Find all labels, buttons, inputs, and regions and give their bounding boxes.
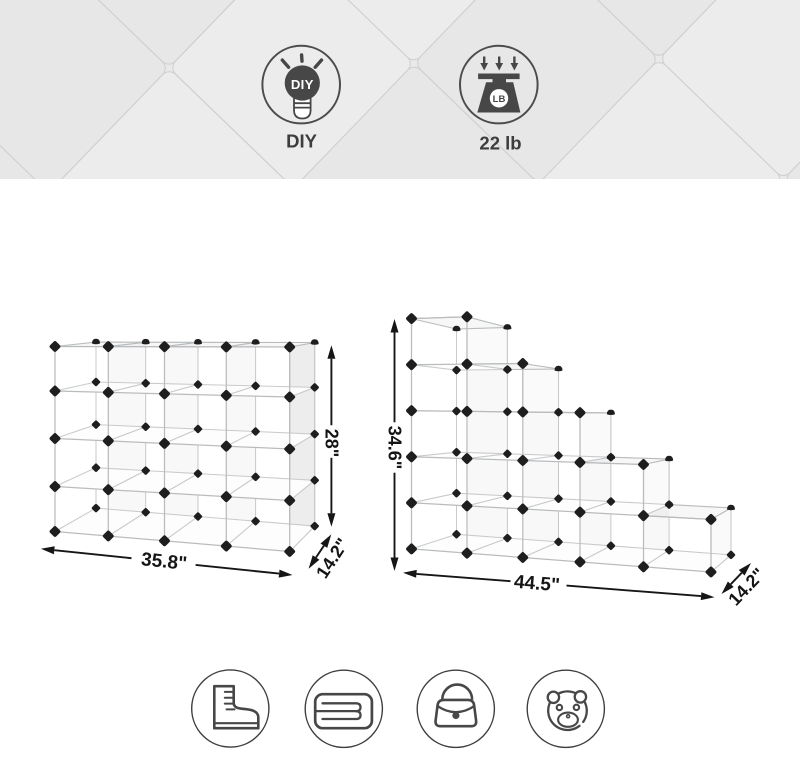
svg-text:DIY: DIY (286, 131, 318, 152)
svg-text:DIY: DIY (291, 77, 314, 92)
svg-text:28": 28" (322, 429, 342, 458)
svg-text:44.5": 44.5" (513, 572, 561, 597)
svg-text:22 lb: 22 lb (479, 133, 521, 154)
svg-text:34.6": 34.6" (385, 426, 405, 470)
svg-text:LB: LB (493, 94, 506, 105)
